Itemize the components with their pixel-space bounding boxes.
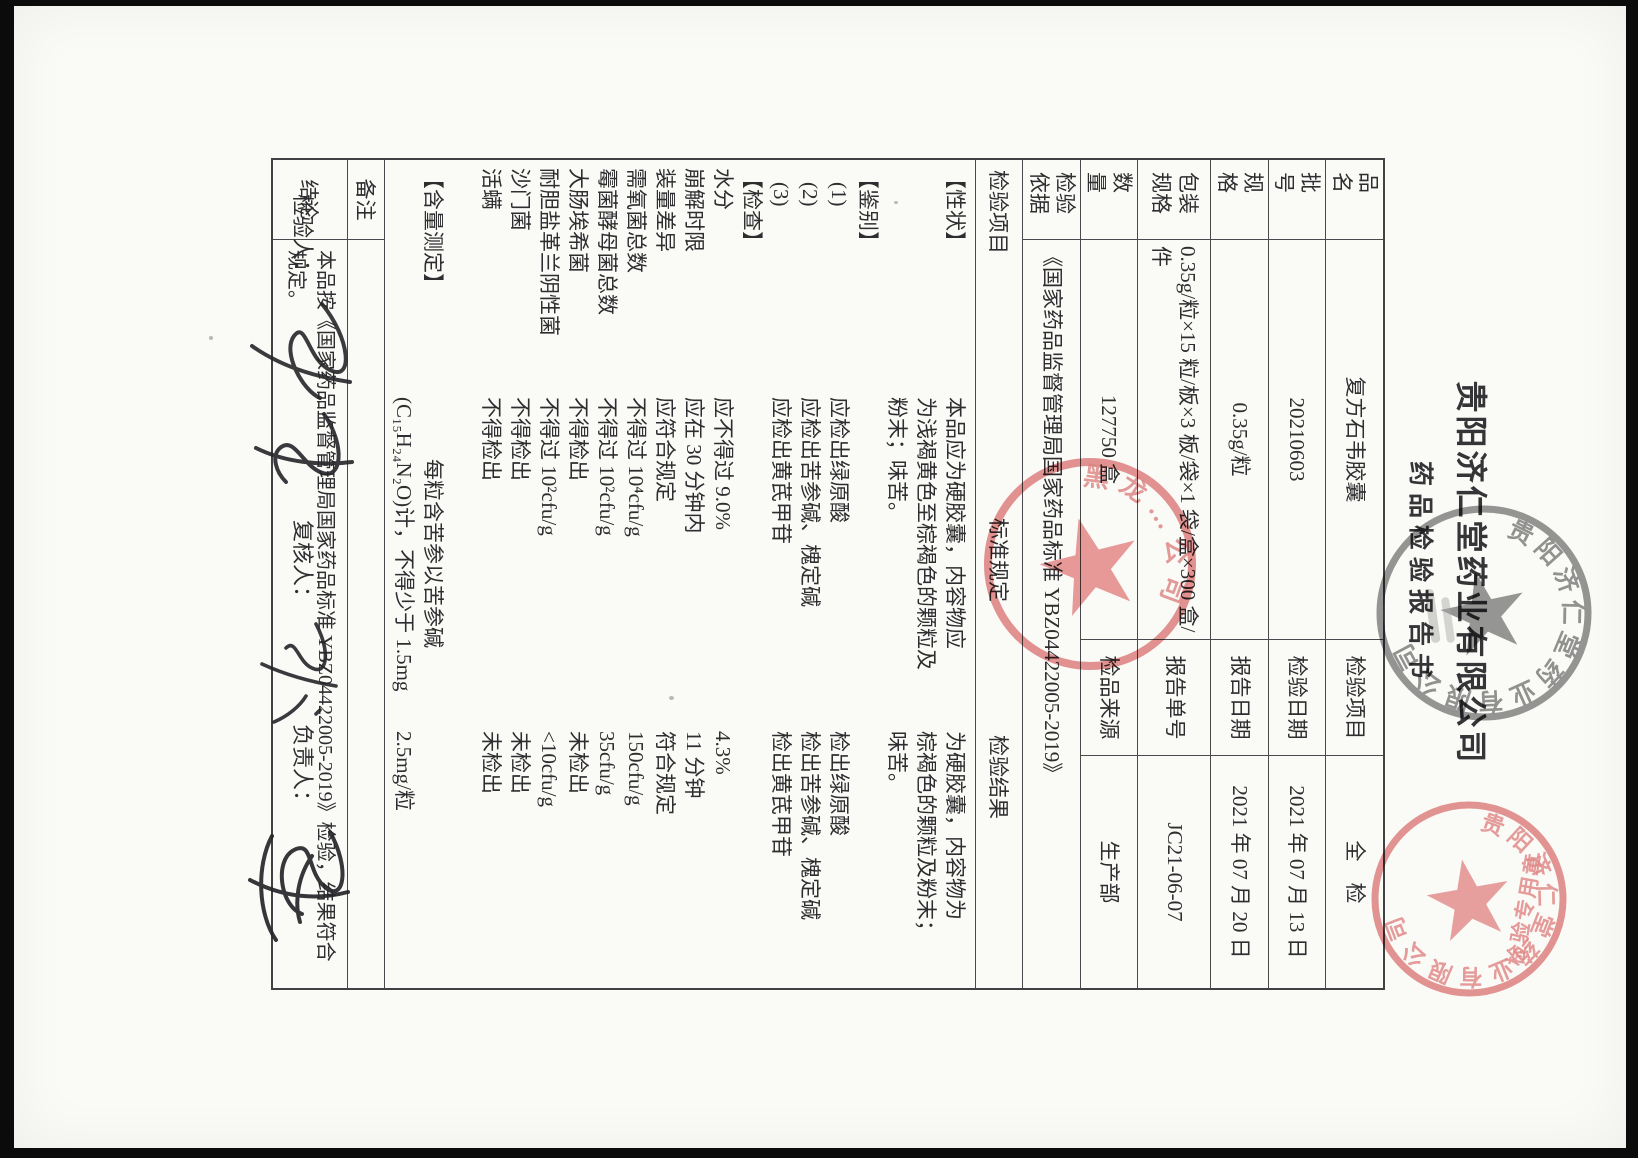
result-line-result: 棕褐色的颗粒及粉末； bbox=[912, 725, 941, 988]
result-line-standard: 应在 30 分钟内 bbox=[680, 395, 709, 725]
approver-label: 负责人： bbox=[288, 724, 320, 812]
result-line: 粉末；味苦。味苦。 bbox=[883, 160, 912, 988]
result-line: 装量差异应符合规定符合规定 bbox=[651, 160, 680, 988]
reviewer-label: 复核人： bbox=[288, 520, 320, 608]
info-value: 2021 年 07 月 13 日 bbox=[1269, 756, 1326, 988]
result-line: 大肠埃希菌不得检出未检出 bbox=[564, 160, 593, 988]
result-line-standard: (C₁₅H₂₄N₂O)计，不得少于 1.5mg bbox=[390, 395, 419, 725]
red-seal-rim-text: 黑龙…公司 bbox=[1077, 451, 1202, 628]
result-line-standard: 应符合规定 bbox=[651, 395, 680, 725]
result-line-result bbox=[738, 725, 767, 988]
result-line-standard: 应检出绿原酸 bbox=[825, 395, 854, 725]
result-line-item: 【鉴别】 bbox=[854, 160, 883, 395]
result-line-result bbox=[854, 725, 883, 988]
result-line-standard: 应检出苦参碱、槐定碱 bbox=[796, 395, 825, 725]
inspector-signature bbox=[244, 286, 364, 516]
result-line bbox=[448, 160, 477, 988]
result-line-result: 4.3% bbox=[709, 725, 738, 988]
result-table-body: 【性状】本品应为硬胶囊，内容物应为硬胶囊，内容物为为浅褐黄色至棕褐色的颗粒及棕褐… bbox=[386, 160, 976, 988]
supplier-seal-red: 黑龙…公司 bbox=[977, 451, 1203, 677]
info-value: 0.35g/粒 bbox=[1212, 240, 1269, 640]
result-line-item bbox=[912, 160, 941, 395]
info-label: 批 号 bbox=[1269, 160, 1326, 240]
result-line: (2)应检出苦参碱、槐定碱检出苦参碱、槐定碱 bbox=[796, 160, 825, 988]
inspection-seal-red: 贵阳济仁堂药业有限公司 检验专用章 bbox=[1367, 797, 1571, 1001]
scanned-report-canvas: 贵阳济仁堂药业有限公司 药品检验报告书 品 名复方石韦胶囊检验项目全 检批 号2… bbox=[0, 0, 1638, 1158]
result-line-standard: 不得过 10²cfu/g bbox=[535, 395, 564, 725]
result-line-standard bbox=[448, 395, 477, 725]
result-line: 霉菌酵母菌总数不得过 10²cfu/g35cfu/g bbox=[593, 160, 622, 988]
info-label: 数 量 bbox=[1081, 160, 1138, 240]
result-line-result: 11 分钟 bbox=[680, 725, 709, 988]
result-line: (1)应检出绿原酸检出绿原酸 bbox=[825, 160, 854, 988]
result-line: (C₁₅H₂₄N₂O)计，不得少于 1.5mg2.5mg/粒 bbox=[390, 160, 419, 988]
result-line-result: 未检出 bbox=[506, 725, 535, 988]
result-line-result: 检出苦参碱、槐定碱 bbox=[796, 725, 825, 988]
info-value: JC21-06-07 bbox=[1139, 756, 1211, 988]
info-label: 检验依据 bbox=[1024, 160, 1081, 240]
result-line: 【鉴别】 bbox=[854, 160, 883, 988]
result-line: 沙门菌不得检出未检出 bbox=[506, 160, 535, 988]
result-line-item: 霉菌酵母菌总数 bbox=[593, 160, 622, 395]
result-line-standard: 每粒含苦参以苦参碱 bbox=[419, 395, 448, 725]
result-line: 【性状】本品应为硬胶囊，内容物应为硬胶囊，内容物为 bbox=[941, 160, 970, 988]
result-line-result: 150cfu/g bbox=[622, 725, 651, 988]
result-line-item: 水分 bbox=[709, 160, 738, 395]
result-line-result: 检出黄芪甲苷 bbox=[767, 725, 796, 988]
result-line-standard: 不得检出 bbox=[506, 395, 535, 725]
result-line-result: 未检出 bbox=[564, 725, 593, 988]
result-line-item: 装量差异 bbox=[651, 160, 680, 395]
rotated-document-wrapper: 贵阳济仁堂药业有限公司 药品检验报告书 品 名复方石韦胶囊检验项目全 检批 号2… bbox=[250, 158, 1510, 988]
result-line-item: 沙门菌 bbox=[506, 160, 535, 395]
result-line-item bbox=[883, 160, 912, 395]
info-label: 报告日期 bbox=[1212, 640, 1269, 756]
result-line-item: 需氧菌总数 bbox=[622, 160, 651, 395]
result-line-standard: 不得检出 bbox=[477, 395, 506, 725]
result-line-item: (3) bbox=[767, 160, 796, 395]
report-table: 品 名复方石韦胶囊检验项目全 检批 号20210603检验日期2021 年 07… bbox=[272, 158, 1386, 990]
result-line-result: <10cfu/g bbox=[535, 725, 564, 988]
result-line-standard: 不得过 10²cfu/g bbox=[593, 395, 622, 725]
inspector-label: 检验人： bbox=[288, 194, 320, 282]
info-label: 检验日期 bbox=[1269, 640, 1326, 756]
result-line-item: 【检查】 bbox=[738, 160, 767, 395]
result-line-standard: 本品应为硬胶囊，内容物应 bbox=[941, 395, 970, 725]
result-line: (3)应检出黄芪甲苷检出黄芪甲苷 bbox=[767, 160, 796, 988]
info-label: 规 格 bbox=[1212, 160, 1269, 240]
result-line-standard: 应检出黄芪甲苷 bbox=[767, 395, 796, 725]
result-line-standard: 不得检出 bbox=[564, 395, 593, 725]
result-line-item bbox=[448, 160, 477, 395]
company-seal-gray: 贵阳济仁堂药业有限公司 bbox=[1368, 497, 1600, 729]
result-line: 【含量测定】每粒含苦参以苦参碱 bbox=[419, 160, 448, 988]
result-line-item: (1) bbox=[825, 160, 854, 395]
result-line-result bbox=[448, 725, 477, 988]
result-line: 耐胆盐革兰阴性菌不得过 10²cfu/g<10cfu/g bbox=[535, 160, 564, 988]
info-value: 生产部 bbox=[1081, 756, 1138, 988]
result-line-result: 味苦。 bbox=[883, 725, 912, 988]
info-row: 批 号20210603检验日期2021 年 07 月 13 日 bbox=[1268, 160, 1326, 988]
result-line: 【检查】 bbox=[738, 160, 767, 988]
result-line-item: 耐胆盐革兰阴性菌 bbox=[535, 160, 564, 395]
result-line-standard: 不得过 10⁴cfu/g bbox=[622, 395, 651, 725]
result-line-item: 崩解时限 bbox=[680, 160, 709, 395]
result-line-standard bbox=[854, 395, 883, 725]
info-value: 20210603 bbox=[1269, 240, 1326, 640]
signature-row: 检验人： 复核人： bbox=[258, 158, 328, 988]
svg-text:黑龙…公司: 黑龙…公司 bbox=[1077, 451, 1202, 628]
info-label: 品 名 bbox=[1327, 160, 1384, 240]
result-line: 需氧菌总数不得过 10⁴cfu/g150cfu/g bbox=[622, 160, 651, 988]
result-line-item: 【含量测定】 bbox=[419, 160, 448, 395]
result-line-standard: 应不得过 9.0% bbox=[709, 395, 738, 725]
result-line-standard: 为浅褐黄色至棕褐色的颗粒及 bbox=[912, 395, 941, 725]
result-line-item: 大肠埃希菌 bbox=[564, 160, 593, 395]
result-line-standard bbox=[738, 395, 767, 725]
result-line-item: 活螨 bbox=[477, 160, 506, 395]
result-line-item: (2) bbox=[796, 160, 825, 395]
result-line-standard: 粉末；味苦。 bbox=[883, 395, 912, 725]
result-line-result: 符合规定 bbox=[651, 725, 680, 988]
reviewer-signature bbox=[250, 610, 350, 740]
result-line: 为浅褐黄色至棕褐色的颗粒及棕褐色的颗粒及粉末； bbox=[912, 160, 941, 988]
result-line-item: 【性状】 bbox=[941, 160, 970, 395]
remark-label: 备注 bbox=[349, 160, 385, 240]
info-label: 包装规格 bbox=[1139, 160, 1211, 240]
result-line-result: 未检出 bbox=[477, 725, 506, 988]
result-line-result: 35cfu/g bbox=[593, 725, 622, 988]
result-line-result bbox=[419, 725, 448, 988]
info-value: 2021 年 07 月 20 日 bbox=[1212, 756, 1269, 988]
result-line-result: 为硬胶囊，内容物为 bbox=[941, 725, 970, 988]
result-line: 活螨不得检出未检出 bbox=[477, 160, 506, 988]
result-line: 水分应不得过 9.0%4.3% bbox=[709, 160, 738, 988]
result-line-result: 2.5mg/粒 bbox=[390, 725, 419, 988]
scan-speck bbox=[209, 336, 213, 340]
info-row: 规 格0.35g/粒报告日期2021 年 07 月 20 日 bbox=[1211, 160, 1269, 988]
result-line-item bbox=[390, 160, 419, 395]
result-line-result: 检出绿原酸 bbox=[825, 725, 854, 988]
column-header-item: 检验项目 bbox=[977, 160, 1023, 395]
inspection-report-document: 贵阳济仁堂药业有限公司 药品检验报告书 品 名复方石韦胶囊检验项目全 检批 号2… bbox=[250, 158, 1510, 988]
result-line: 崩解时限应在 30 分钟内11 分钟 bbox=[680, 160, 709, 988]
column-header-result: 检验结果 bbox=[977, 725, 1023, 988]
approver-signature bbox=[238, 810, 358, 960]
